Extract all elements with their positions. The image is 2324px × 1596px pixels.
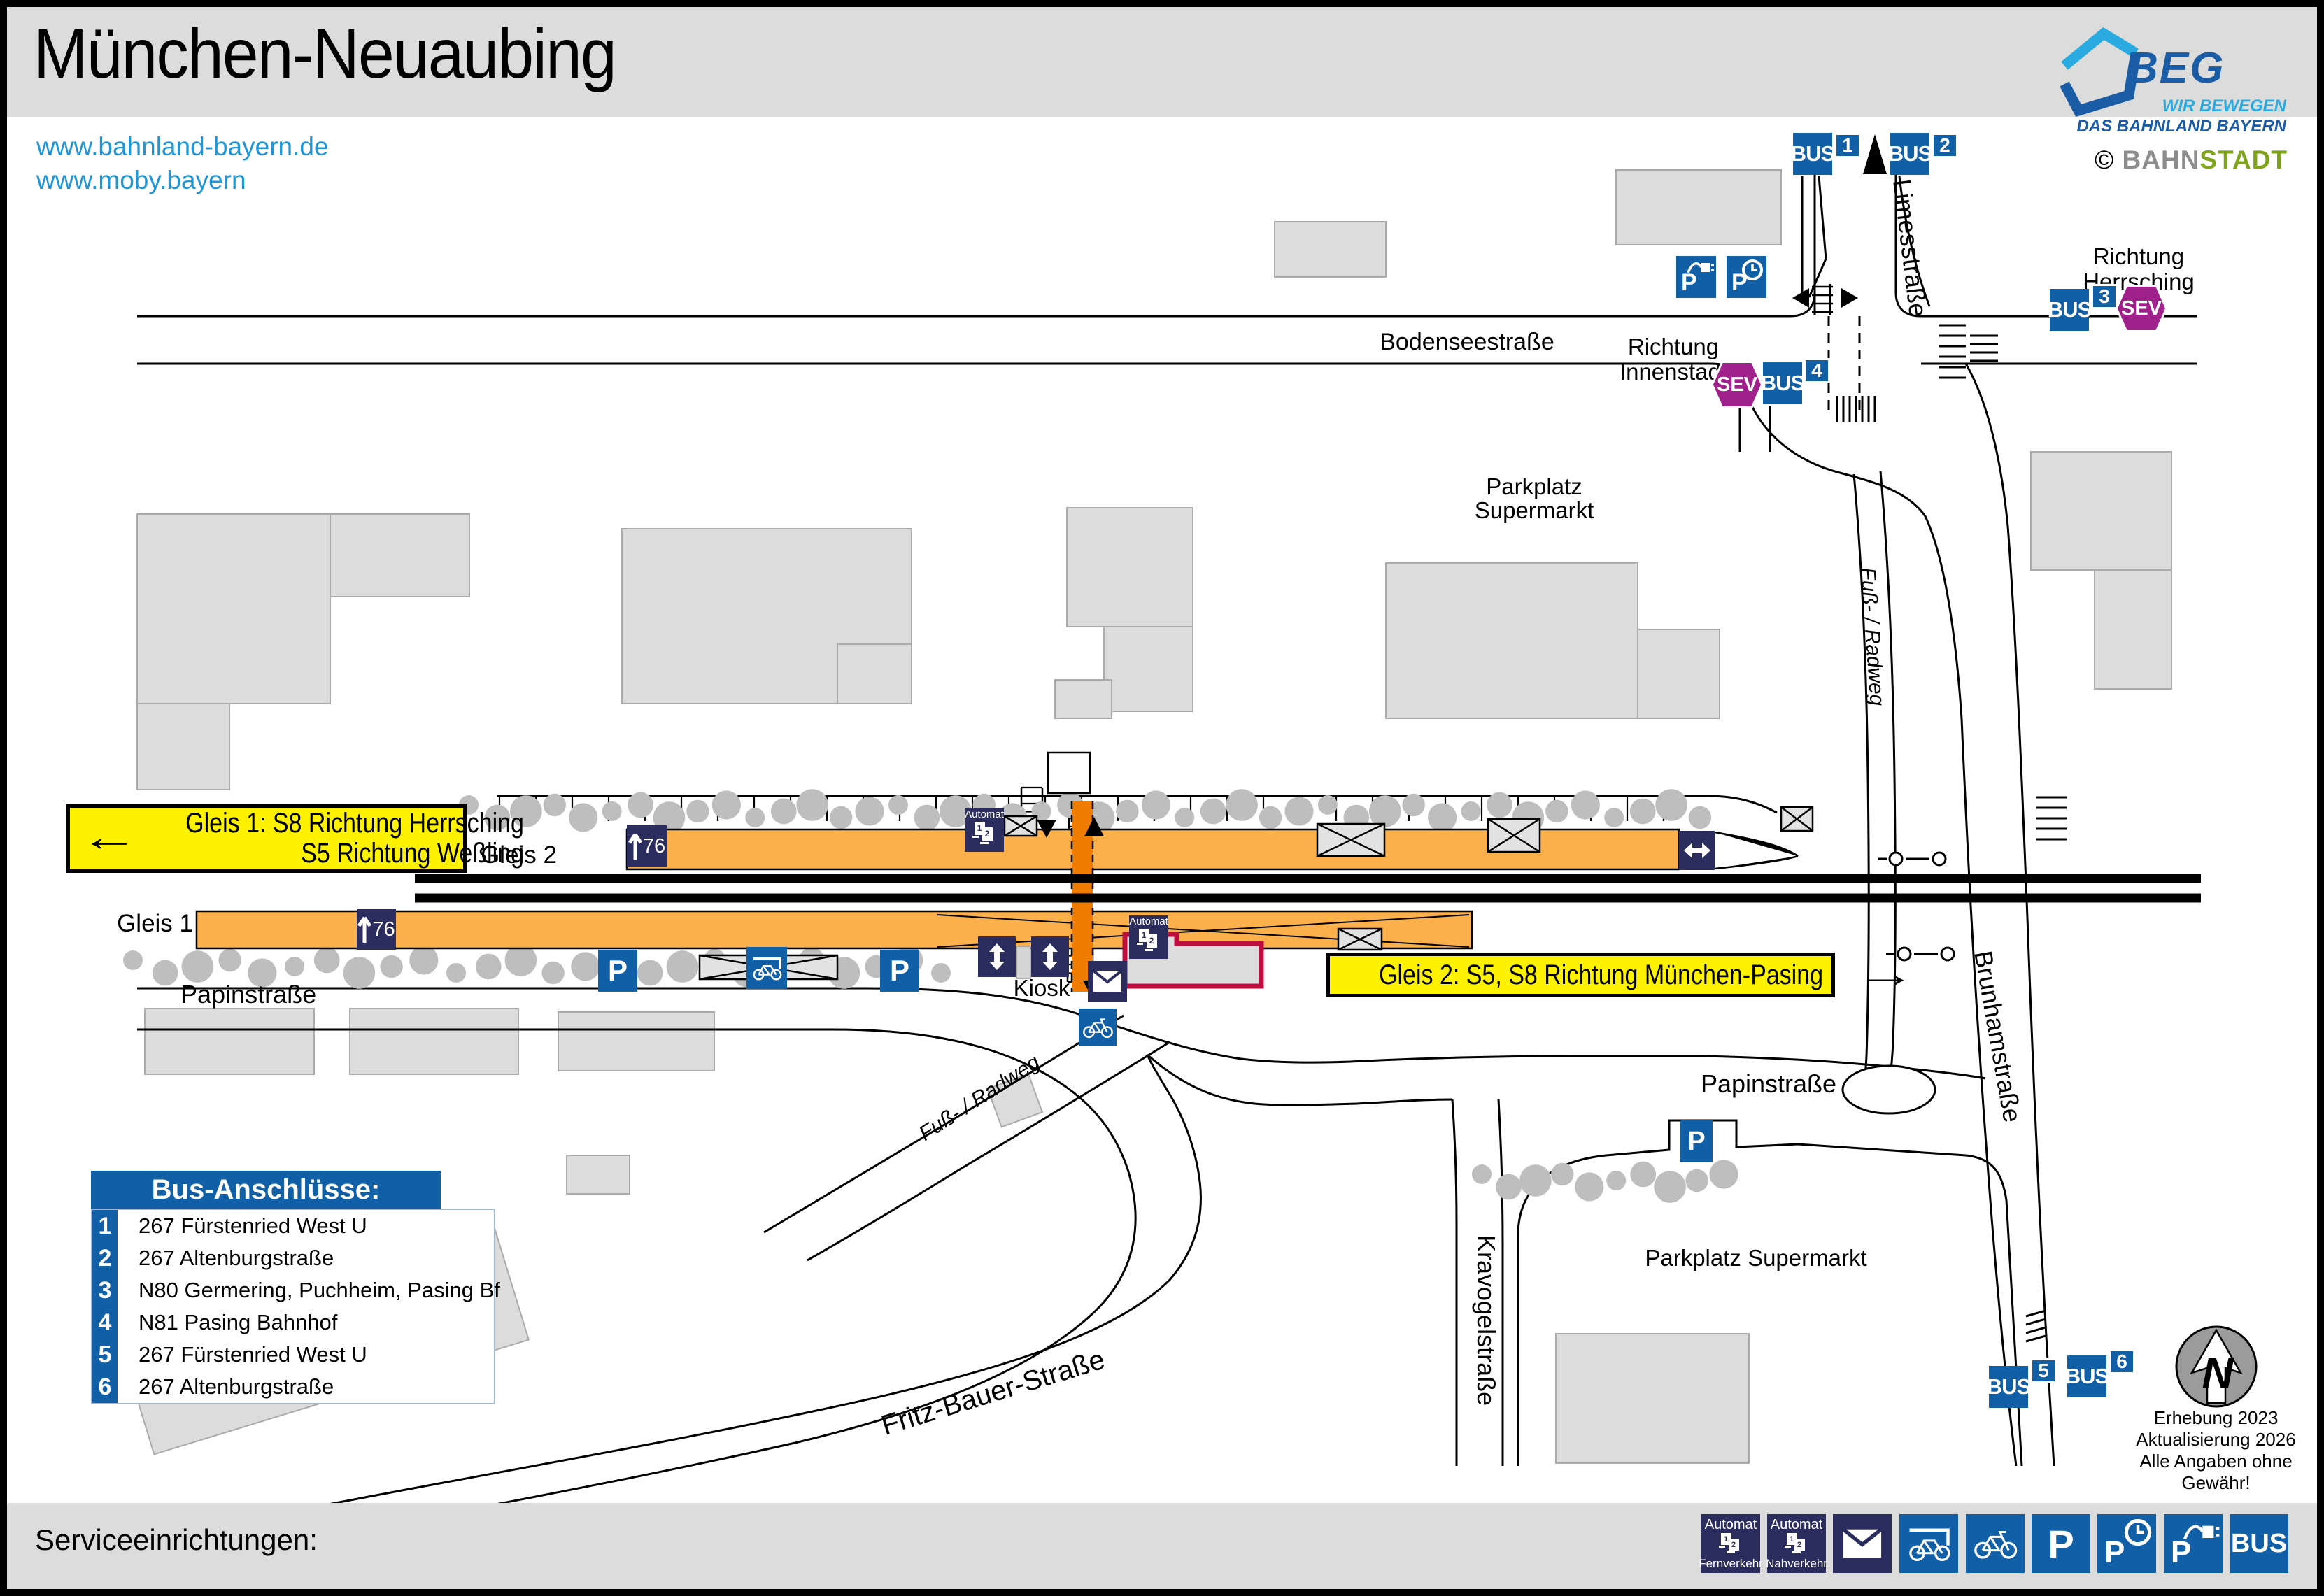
street-label-fritz-bauer: Fritz-Bauer-Straße [878, 1344, 1109, 1441]
link-moby-bayern[interactable]: www.moby.bayern [36, 164, 329, 197]
line-number: 6 [92, 1371, 118, 1403]
gleis1-sign-line1: Gleis 1: S8 Richtung Herrsching [185, 808, 524, 839]
elevator-icon-2 [1031, 936, 1069, 977]
line-number: 5 [92, 1339, 118, 1371]
street-label-kravogel: Kravogelstraße [1472, 1235, 1501, 1406]
bus-route-north-arrow-icon [1863, 134, 1887, 174]
automat-label: Automat [1771, 1516, 1822, 1533]
line-number: 1 [92, 1210, 118, 1242]
mailbox-icon-map [1088, 961, 1127, 1002]
traffic-island [1843, 1066, 1935, 1113]
innenstadt-label: Innenstadt [1620, 359, 1727, 385]
street-label-fussradweg-east: Fuß- / Radweg [1856, 567, 1889, 707]
list-item: 5267 Fürstenried West U [92, 1339, 500, 1371]
line-number: 2 [92, 1242, 118, 1274]
bus-label: BUS [2231, 1529, 2287, 1559]
kiosk-building [1016, 946, 1030, 978]
line-label: N80 Germering, Puchheim, Pasing Bf [118, 1278, 500, 1303]
street-label-brunham: Brunhamstraße [1969, 948, 2027, 1124]
bus-stop-5-badge: BUS [1989, 1366, 2028, 1408]
parkplatz-supermarkt-north-2: Supermarkt [1475, 497, 1594, 523]
svg-text:2: 2 [1149, 936, 1154, 946]
map-labels: Richtung Herrsching Richtung Innenstadt … [117, 243, 2195, 1271]
svg-text:2: 2 [1797, 1541, 1801, 1549]
ticket-machine-icon-north: Automat 1 2 [965, 808, 1004, 852]
page-title: München-Neuaubing [34, 14, 616, 94]
bus-stop-3-number: 3 [2091, 284, 2118, 309]
disclaimer: Alle Angaben ohne Gewähr! [2109, 1451, 2323, 1494]
bike-parking-icon-map [1079, 1009, 1117, 1046]
svg-text:1: 1 [1142, 930, 1147, 940]
up-arrow-icon [628, 832, 642, 861]
covered-bike-parking-icon [1899, 1514, 1958, 1573]
parking-badge-east: P [880, 950, 919, 992]
ticket-glyph: 1 2 [1136, 928, 1161, 955]
height-value: 76 [372, 918, 395, 941]
platform-height-badge-gleis2: 76 [627, 825, 667, 867]
level-crossing-gates [1878, 853, 1954, 960]
line-label: 267 Fürstenried West U [118, 1213, 367, 1239]
railway-tracks [415, 878, 2201, 898]
svg-text:1: 1 [1724, 1535, 1728, 1544]
bus-stop-2-badge: BUS [1890, 133, 1929, 175]
svg-text:2: 2 [985, 829, 990, 839]
credit-stadt: STADT [2199, 145, 2288, 174]
line-label: N81 Pasing Bahnhof [118, 1310, 337, 1335]
line-label: 267 Fürstenried West U [118, 1342, 367, 1367]
automat-label: Automat [1129, 915, 1168, 928]
bus-stop-4-badge: BUS [1763, 362, 1802, 404]
credit-bahn: BAHN [2123, 145, 2200, 174]
mailbox-icon [1833, 1514, 1892, 1573]
parkplatz-supermarkt-south: Parkplatz Supermarkt [1645, 1245, 1866, 1271]
bahnstadt-credit: © BAHNSTADT [2078, 145, 2288, 175]
bus-stop-2-number: 2 [1932, 133, 1958, 158]
plug-icon [2182, 1518, 2221, 1546]
parking-badge-west: P [598, 950, 637, 992]
parkplatz-supermarkt-north-1: Parkplatz [1486, 473, 1582, 499]
svg-text:1: 1 [977, 823, 982, 833]
service-facilities-label: Serviceeinrichtungen: [35, 1523, 318, 1557]
gleis1-sign-line2: S5 Richtung Weßling [185, 839, 524, 869]
list-item: 6267 Altenburgstraße [92, 1371, 500, 1403]
list-item: 4N81 Pasing Bahnhof [92, 1306, 500, 1339]
right-arrow-icon: → [1857, 950, 1915, 996]
sev-stop-innenstadt: SEV [1711, 361, 1763, 408]
compass-label: N [2202, 1349, 2234, 1397]
street-label-bodensee: Bodenseestraße [1380, 329, 1554, 355]
richtung-label: Richtung [1628, 334, 1719, 359]
gleis2-sign-text: Gleis 2: S5, S8 Richtung München-Pasing [1379, 960, 1823, 991]
station-area-map: N Bodenseestraße Limesstraße Papinstraße… [0, 0, 2324, 1596]
ev-charging-parking-badge: P [1676, 256, 1716, 298]
gleis1-label: Gleis 1 [117, 910, 193, 937]
bus-stop-6-number: 6 [2109, 1349, 2135, 1374]
list-item: 1267 Fürstenried West U [92, 1210, 500, 1242]
line-number: 4 [92, 1306, 118, 1339]
parking-letter: P [2048, 1521, 2074, 1567]
ticket-machine-icon-south: Automat 1 2 [1129, 915, 1168, 959]
sev-label: SEV [2118, 287, 2165, 330]
bike-parking-icon [1966, 1514, 2025, 1573]
ticket-machine-local-icon: Automat 12 Nahverkehr [1767, 1514, 1826, 1573]
kiosk-label: Kiosk [1014, 975, 1070, 1001]
height-value: 76 [643, 835, 665, 858]
line-label: 267 Altenburgstraße [118, 1246, 334, 1271]
clock-icon [1740, 257, 1765, 283]
street-label-papin-right: Papinstraße [1701, 1069, 1836, 1098]
survey-notes: Erhebung 2023 Aktualisierung 2026 Alle A… [2109, 1407, 2323, 1494]
gleis2-direction-sign: Gleis 2: S5, S8 Richtung München-Pasing … [1326, 953, 1835, 997]
automat-label: Automat [1705, 1516, 1757, 1533]
svg-text:2: 2 [1731, 1541, 1736, 1549]
short-term-parking-badge: P [1727, 256, 1766, 298]
bus-connections-list: 1267 Fürstenried West U 2267 Altenburgst… [91, 1209, 495, 1404]
line-label: 267 Altenburgstraße [118, 1374, 334, 1399]
short-term-parking-icon: P [2097, 1514, 2156, 1573]
nahverkehr-label: Nahverkehr [1766, 1557, 1827, 1571]
list-item: 2267 Altenburgstraße [92, 1242, 500, 1274]
bus-stop-6-badge: BUS [2067, 1355, 2106, 1397]
bus-stop-3-badge: BUS [2050, 289, 2089, 331]
survey-year: Erhebung 2023 [2109, 1407, 2323, 1429]
beg-tagline-2: DAS BAHNLAND BAYERN [2057, 117, 2286, 136]
list-item: 3N80 Germering, Puchheim, Pasing Bf [92, 1274, 500, 1306]
sev-label: SEV [1713, 363, 1761, 406]
street-label-papin-left: Papinstraße [180, 980, 316, 1009]
bus-stop-5-number: 5 [2030, 1358, 2057, 1383]
parking-badge-supermarkt: P [1680, 1120, 1713, 1162]
level-access-icon [1679, 831, 1715, 870]
link-bahnland-bayern[interactable]: www.bahnland-bayern.de [36, 130, 329, 164]
parking-icon: P [2032, 1514, 2090, 1573]
richtung-label: Richtung [2093, 243, 2184, 269]
gleis1-direction-sign: ← Gleis 1: S8 Richtung Herrsching S5 Ric… [66, 804, 467, 873]
beg-wordmark: BEG [2127, 43, 2225, 93]
clock-icon [2122, 1516, 2154, 1548]
beg-tagline-1: WIR BEWEGEN [2057, 97, 2286, 116]
fernverkehr-label: Fernverkehr [1699, 1557, 1763, 1571]
automat-label: Automat [965, 808, 1004, 821]
up-arrow-icon [357, 915, 371, 944]
copyright-icon: © [2095, 145, 2114, 174]
line-number: 3 [92, 1274, 118, 1306]
bus-stop-icon: BUS [2230, 1514, 2288, 1573]
plug-icon [1687, 257, 1715, 278]
covered-bike-parking-icon-map [746, 947, 787, 989]
compass-north-icon: N [2176, 1327, 2256, 1406]
bus-stop-1-badge: BUS [1793, 133, 1832, 175]
ticket-machine-longdistance-icon: Automat 12 Fernverkehr [1701, 1514, 1760, 1573]
platform-height-badge-gleis1: 76 [357, 909, 396, 950]
bus-stop-1-number: 1 [1834, 133, 1861, 158]
elevator-icon-1 [978, 936, 1016, 977]
website-links: www.bahnland-bayern.de www.moby.bayern [36, 130, 329, 197]
svg-text:1: 1 [1790, 1535, 1794, 1544]
left-arrow-icon: ← [80, 814, 139, 860]
ticket-glyph: 1 2 [972, 821, 997, 848]
ev-charging-parking-icon: P [2164, 1514, 2223, 1573]
update-year: Aktualisierung 2026 [2109, 1429, 2323, 1451]
bus-stop-4-number: 4 [1804, 358, 1830, 383]
bus-connections-title: Bus-Anschlüsse: [91, 1171, 441, 1209]
street-label-limes: Limesstraße [1887, 178, 1933, 319]
sev-stop-herrsching: SEV [2116, 285, 2167, 332]
